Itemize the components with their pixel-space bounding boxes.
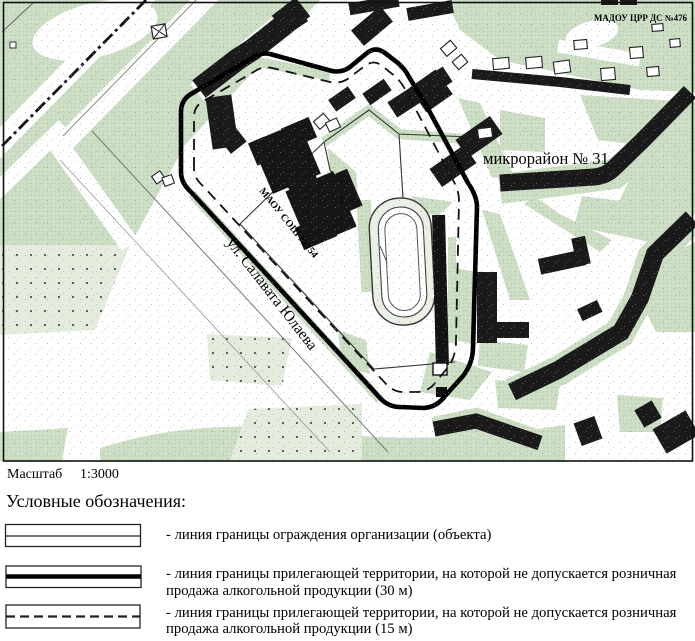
svg-text:1:3000: 1:3000 (80, 467, 119, 482)
svg-text:- линия границы прилегающей те: - линия границы прилегающей территории, … (166, 566, 677, 582)
svg-text:- линия границы ограждения орг: - линия границы ограждения организации (… (166, 527, 491, 543)
svg-text:продажа алкогольной продукции: продажа алкогольной продукции (30 м) (166, 583, 413, 599)
svg-text:Условные обозначения:: Условные обозначения: (6, 491, 186, 511)
svg-text:Масштаб: Масштаб (7, 467, 62, 482)
svg-text:- линия границы прилегающей те: - линия границы прилегающей территории, … (166, 605, 677, 621)
svg-text:продажа алкогольной продукции: продажа алкогольной продукции (15 м) (166, 621, 413, 637)
